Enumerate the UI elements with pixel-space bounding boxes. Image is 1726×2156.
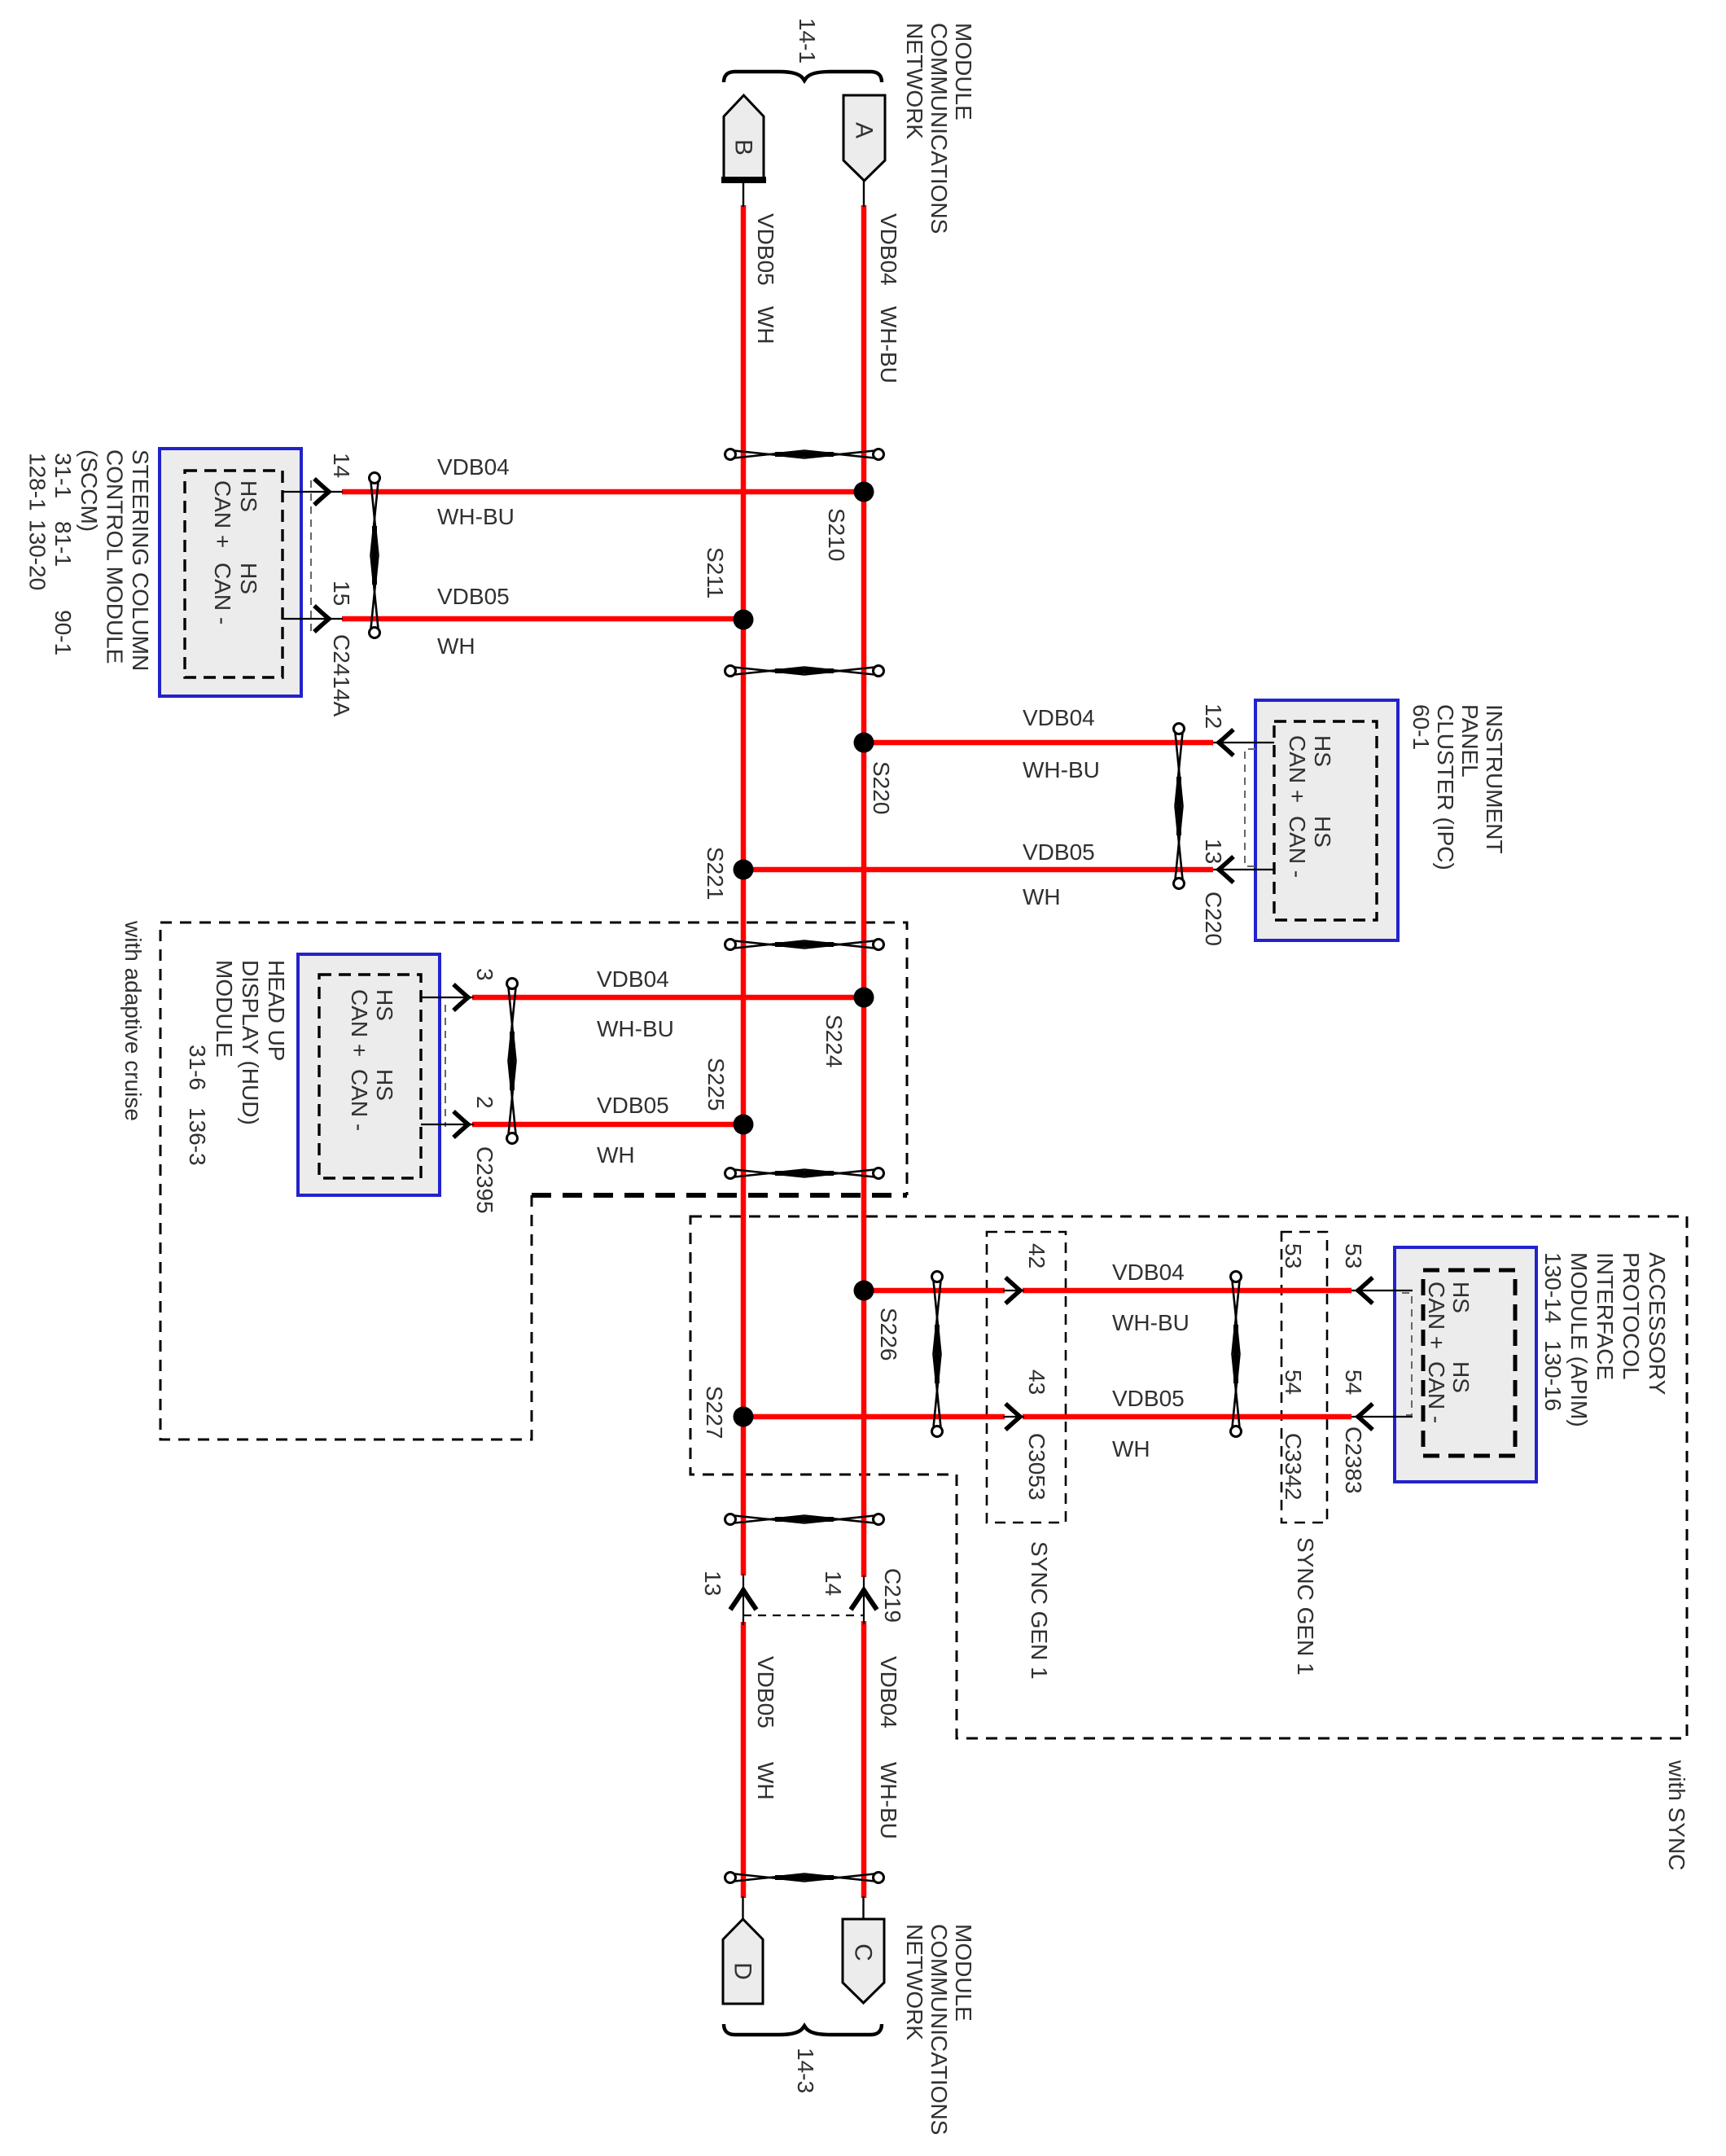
svg-text:PROTOCOL: PROTOCOL	[1619, 1252, 1644, 1380]
svg-text:S224: S224	[821, 1014, 847, 1067]
svg-text:INSTRUMENT: INSTRUMENT	[1482, 704, 1507, 854]
svg-text:CONTROL MODULE: CONTROL MODULE	[103, 449, 128, 664]
svg-text:WH: WH	[753, 306, 778, 344]
svg-text:54: 54	[1281, 1369, 1306, 1395]
svg-text:C2395: C2395	[472, 1146, 497, 1214]
svg-text:VDB05: VDB05	[1112, 1386, 1185, 1411]
svg-text:VDB05: VDB05	[753, 213, 778, 286]
svg-text:S210: S210	[824, 508, 849, 561]
svg-text:VDB05: VDB05	[1023, 839, 1095, 865]
svg-text:WH: WH	[753, 1762, 778, 1800]
svg-text:WH-BU: WH-BU	[1023, 757, 1100, 782]
svg-text:CLUSTER (IPC): CLUSTER (IPC)	[1433, 704, 1458, 870]
svg-text:WH: WH	[597, 1142, 635, 1168]
svg-text:(SCCM): (SCCM)	[77, 449, 102, 532]
svg-text:SYNC GEN 1: SYNC GEN 1	[1293, 1537, 1318, 1676]
svg-text:WH-BU: WH-BU	[876, 1762, 901, 1839]
svg-text:C2414A: C2414A	[329, 634, 354, 717]
svg-text:SYNC GEN 1: SYNC GEN 1	[1027, 1541, 1052, 1680]
svg-text:VDB04: VDB04	[876, 1656, 901, 1729]
svg-text:STEERING COLUMN: STEERING COLUMN	[128, 449, 153, 671]
svg-text:with SYNC: with SYNC	[1664, 1759, 1689, 1870]
svg-text:C220: C220	[1201, 892, 1226, 946]
svg-text:60-1: 60-1	[1408, 704, 1434, 750]
svg-text:15: 15	[329, 581, 354, 606]
svg-text:53: 53	[1281, 1243, 1306, 1269]
svg-text:VDB05: VDB05	[597, 1093, 669, 1118]
svg-text:with adaptive cruise: with adaptive cruise	[120, 920, 146, 1121]
svg-text:ACCESSORY: ACCESSORY	[1645, 1252, 1670, 1396]
svg-text:VDB04: VDB04	[1023, 705, 1095, 730]
svg-text:C2383: C2383	[1341, 1426, 1366, 1494]
svg-text:WH-BU: WH-BU	[597, 1016, 674, 1041]
svg-text:C219: C219	[880, 1568, 905, 1623]
svg-text:14-1: 14-1	[795, 18, 820, 64]
svg-text:B: B	[730, 139, 757, 156]
svg-text:A: A	[851, 122, 878, 138]
svg-text:31-181-190-1: 31-181-190-1	[50, 453, 76, 655]
svg-text:C: C	[850, 1943, 877, 1961]
svg-text:43: 43	[1024, 1369, 1049, 1395]
svg-text:WH: WH	[437, 633, 475, 659]
svg-text:42: 42	[1024, 1243, 1049, 1269]
svg-text:MODULE: MODULE	[212, 960, 237, 1058]
svg-text:WH: WH	[1112, 1436, 1150, 1461]
svg-text:COMMUNICATIONS: COMMUNICATIONS	[927, 1924, 952, 2135]
svg-text:C3342: C3342	[1281, 1433, 1306, 1501]
svg-text:NETWORK: NETWORK	[902, 23, 927, 139]
svg-text:MODULE (APIM): MODULE (APIM)	[1566, 1252, 1592, 1427]
svg-text:13: 13	[1201, 839, 1226, 864]
svg-text:S227: S227	[702, 1386, 727, 1439]
svg-text:C3053: C3053	[1024, 1433, 1049, 1501]
svg-text:VDB04: VDB04	[437, 454, 510, 480]
svg-text:VDB04: VDB04	[1112, 1260, 1185, 1285]
svg-text:D: D	[729, 1962, 756, 1980]
svg-text:VDB04: VDB04	[876, 213, 901, 286]
svg-text:WH-BU: WH-BU	[1112, 1310, 1189, 1335]
svg-text:S225: S225	[703, 1058, 729, 1111]
svg-text:WH: WH	[1023, 884, 1061, 909]
svg-text:WH-BU: WH-BU	[876, 306, 901, 383]
svg-text:53: 53	[1341, 1243, 1366, 1269]
svg-text:54: 54	[1341, 1369, 1366, 1395]
svg-text:MODULE: MODULE	[951, 1924, 976, 2022]
svg-text:S221: S221	[703, 847, 728, 900]
svg-text:12: 12	[1201, 703, 1226, 729]
svg-text:WH-BU: WH-BU	[437, 504, 515, 529]
svg-text:3: 3	[472, 968, 497, 981]
svg-text:128-1130-20: 128-1130-20	[25, 453, 50, 590]
svg-text:14-3: 14-3	[793, 2048, 818, 2093]
svg-text:COMMUNICATIONS: COMMUNICATIONS	[927, 23, 952, 234]
svg-text:2: 2	[472, 1096, 497, 1109]
svg-text:NETWORK: NETWORK	[902, 1924, 927, 2040]
svg-text:VDB04: VDB04	[597, 966, 669, 992]
svg-text:HEAD UP: HEAD UP	[264, 960, 289, 1061]
svg-text:14: 14	[329, 453, 354, 478]
svg-text:14: 14	[821, 1571, 846, 1596]
svg-text:INTERFACE: INTERFACE	[1592, 1252, 1618, 1380]
svg-text:VDB05: VDB05	[753, 1656, 778, 1729]
svg-text:S211: S211	[703, 547, 728, 598]
svg-text:S220: S220	[869, 761, 894, 814]
svg-text:VDB05: VDB05	[437, 584, 510, 609]
svg-text:MODULE: MODULE	[951, 23, 976, 121]
svg-text:S226: S226	[876, 1308, 901, 1361]
svg-text:PANEL: PANEL	[1457, 704, 1483, 778]
svg-text:13: 13	[700, 1571, 725, 1596]
svg-text:DISPLAY (HUD): DISPLAY (HUD)	[238, 960, 263, 1125]
